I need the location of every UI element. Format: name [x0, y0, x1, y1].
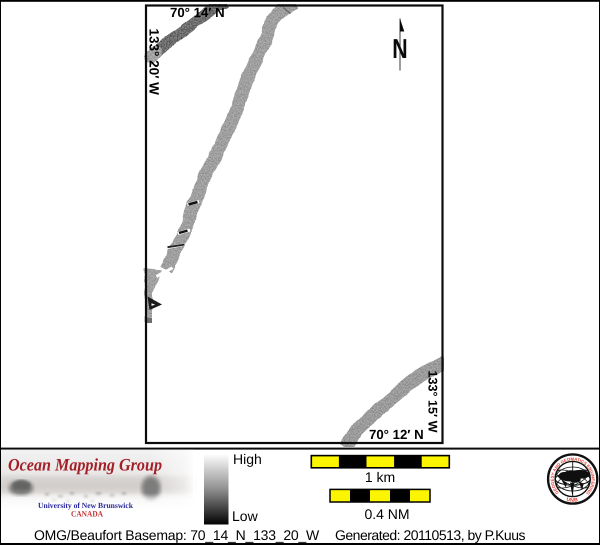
svg-text:Low: Low [232, 508, 259, 524]
svg-text:0.4 NM: 0.4 NM [364, 506, 409, 522]
svg-text:1 km: 1 km [365, 469, 395, 485]
svg-text:OMG/Beaufort Basemap: 70_14_N_: OMG/Beaufort Basemap: 70_14_N_133_20_W [34, 527, 320, 543]
svg-text:133° 20′ W: 133° 20′ W [147, 29, 162, 96]
svg-text:133° 15′ W: 133° 15′ W [426, 371, 440, 433]
svg-text:70° 14′ N: 70° 14′ N [170, 5, 225, 20]
svg-text:N: N [392, 33, 407, 64]
svg-text:High: High [233, 451, 262, 467]
svg-text:Ocean Mapping Group: Ocean Mapping Group [8, 454, 162, 474]
svg-text:CANADA: CANADA [71, 510, 103, 519]
svg-text:Generated: 20110513, by P.Kuus: Generated: 20110513, by P.Kuus [335, 527, 525, 543]
svg-text:70° 12′ N: 70° 12′ N [369, 427, 424, 442]
